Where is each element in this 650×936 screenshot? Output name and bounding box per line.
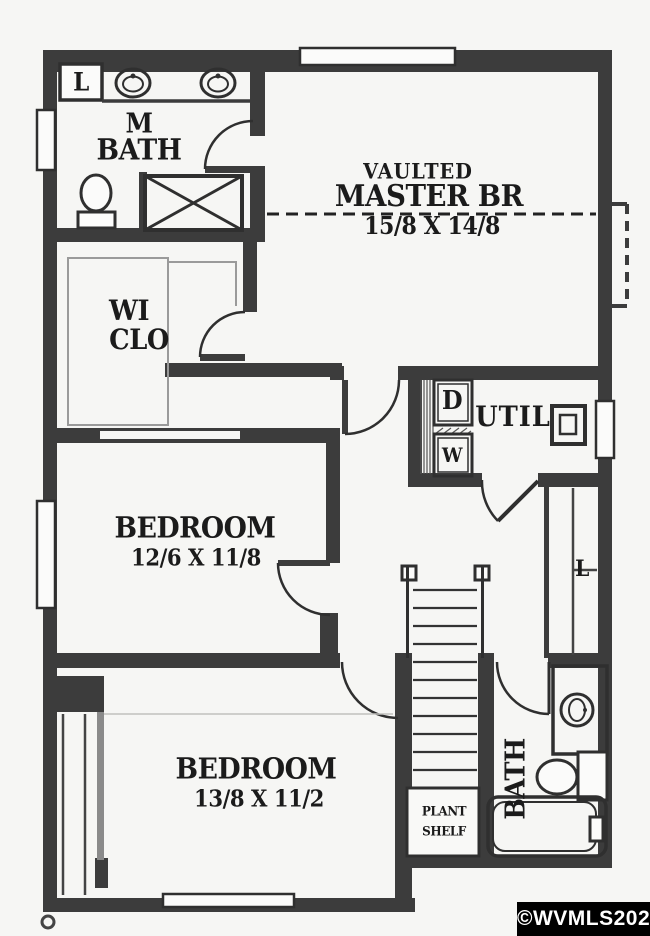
label-washer: W xyxy=(442,445,462,465)
window-master-bath xyxy=(37,110,55,170)
wall-segment xyxy=(398,366,598,380)
shower-icon xyxy=(139,172,242,234)
window-top xyxy=(300,48,455,65)
mls-watermark: ©WVMLS2020 xyxy=(517,902,650,936)
label-bedroom2: BEDROOM xyxy=(176,755,337,784)
wall-segment xyxy=(43,653,340,668)
plant-shelf-box xyxy=(407,788,479,856)
wall-segment xyxy=(243,242,257,312)
wall-segment xyxy=(250,50,265,136)
door-utility xyxy=(482,480,538,521)
door-master-br xyxy=(342,380,399,434)
toilet-icon xyxy=(78,175,115,228)
label-bath2: BATH xyxy=(503,738,530,820)
label-linen-hall: L xyxy=(575,558,589,580)
scan-artifact xyxy=(42,916,54,928)
window-bedroom2 xyxy=(163,894,294,907)
label-master-br: MASTER BR xyxy=(335,182,523,212)
door-master-bath xyxy=(205,121,253,173)
door-bath2 xyxy=(497,662,549,714)
sink-icon xyxy=(116,69,150,97)
label-master-bath-2: BATH xyxy=(96,136,181,165)
window-utility xyxy=(596,401,614,458)
label-linen-master: L xyxy=(73,70,89,95)
label-master-br-dims: 15/8 X 14/8 xyxy=(364,214,500,238)
wall-segment xyxy=(408,366,422,487)
wall-segment xyxy=(165,363,342,377)
floor-plan-canvas: L M BATH VAULTED MASTER BR 15/8 X 14/8 W… xyxy=(0,0,650,936)
stair-treads xyxy=(413,590,477,788)
wall-gap-detail xyxy=(100,431,240,439)
wall-segment xyxy=(326,443,340,563)
sink-icon xyxy=(201,69,235,97)
label-plant-shelf-2: SHELF xyxy=(422,826,466,839)
wall-segment xyxy=(43,50,57,912)
wall-segment xyxy=(48,676,104,712)
wall-segment xyxy=(330,366,344,380)
label-bedroom2-dims: 13/8 X 11/2 xyxy=(194,788,324,811)
window-bedroom1 xyxy=(37,501,55,608)
label-bedroom1-dims: 12/6 X 11/8 xyxy=(131,547,261,570)
door-bedroom2 xyxy=(342,662,398,718)
wall-segment xyxy=(320,613,338,660)
label-plant-shelf-1: PLANT xyxy=(422,806,466,819)
door-wi-clo xyxy=(200,312,245,361)
door-bedroom1 xyxy=(278,560,330,615)
label-wi-clo-1: WI xyxy=(109,297,149,325)
wall-segment xyxy=(95,858,108,888)
label-util: UTIL xyxy=(475,403,550,431)
furnace-box xyxy=(552,406,585,444)
wall-segment xyxy=(395,653,412,912)
label-bedroom1: BEDROOM xyxy=(115,514,276,543)
hatch-strip xyxy=(421,380,433,474)
label-wi-clo-2: CLO xyxy=(109,326,169,354)
label-dryer: D xyxy=(442,388,462,414)
wall-segment xyxy=(544,480,549,658)
staircase xyxy=(402,566,489,788)
toilet-icon xyxy=(537,752,607,800)
